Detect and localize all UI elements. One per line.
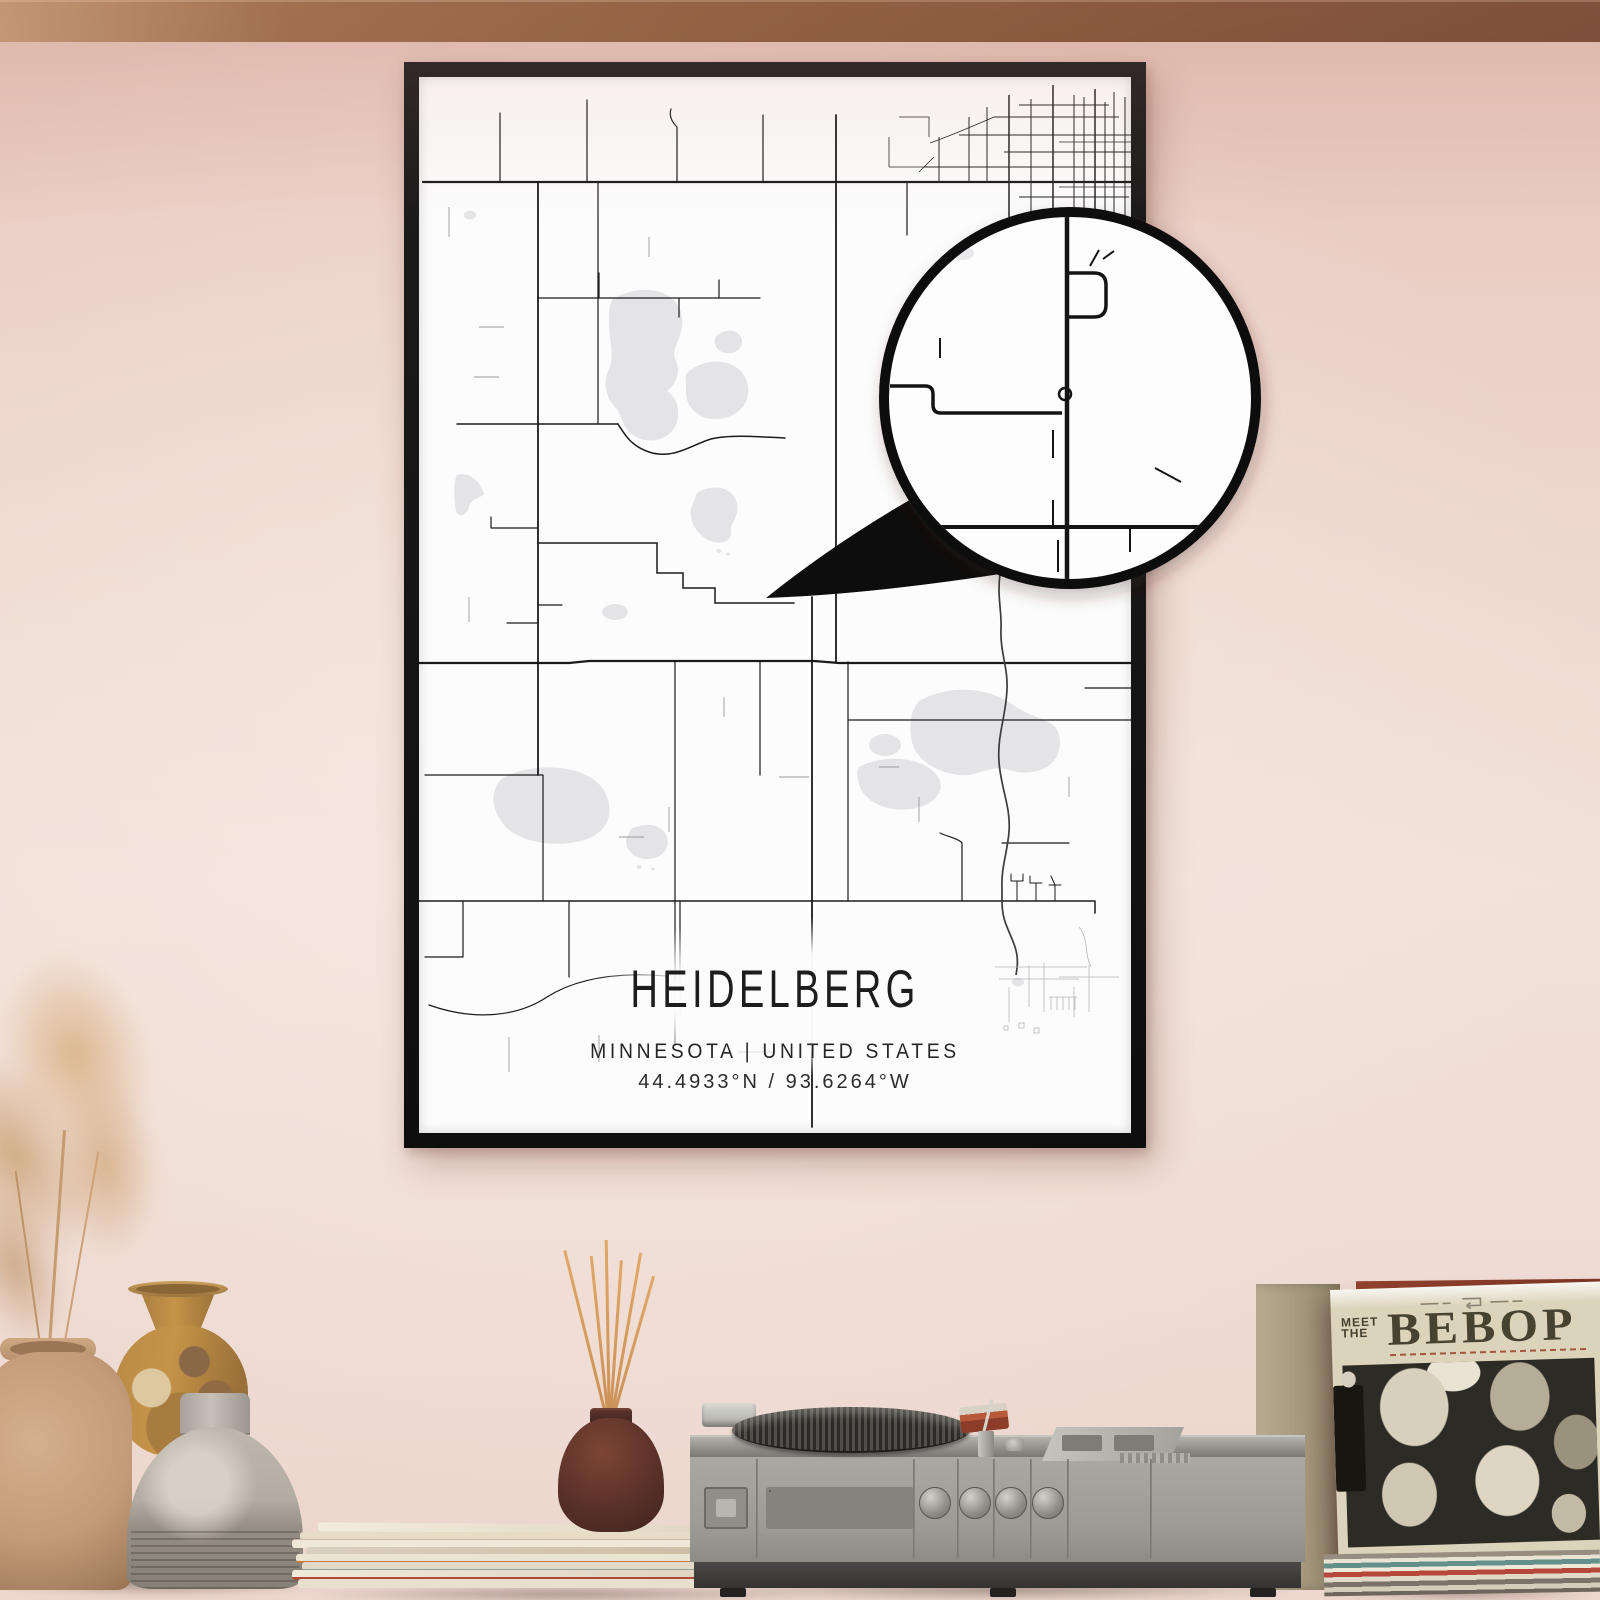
vase-amber-rim — [128, 1281, 228, 1297]
incense-diffuser — [552, 1240, 672, 1540]
vase-tan — [0, 1338, 132, 1590]
player-button — [769, 1490, 771, 1492]
power-button — [704, 1487, 748, 1529]
player-foot — [1250, 1588, 1276, 1597]
sleeve-figure — [1333, 1385, 1366, 1492]
balance-knob — [995, 1487, 1027, 1519]
vase-gray-bell — [127, 1393, 303, 1589]
incense-bottle — [558, 1418, 664, 1532]
panel-seam — [1030, 1459, 1032, 1559]
vase-gray-ribs — [131, 1527, 299, 1589]
panel-seam — [957, 1459, 959, 1559]
table-surface — [0, 0, 1600, 42]
record-sleeve: MEET THE BEBOP — [1330, 1281, 1600, 1561]
speed-selector — [1006, 1439, 1024, 1451]
sleeve-title: BEBOP — [1386, 1297, 1577, 1356]
panel-seam — [993, 1459, 995, 1559]
record-player — [690, 1405, 1305, 1595]
panel-seam — [913, 1459, 915, 1559]
volume-knob — [919, 1487, 951, 1519]
turntable-platter — [732, 1407, 970, 1453]
player-foot — [720, 1588, 746, 1597]
vase-tan-body — [0, 1352, 132, 1590]
room-scene: HEIDELBERG MINNESOTA | UNITED STATES 44.… — [0, 0, 1600, 1600]
tuning-knob — [1032, 1487, 1064, 1519]
player-plinth — [694, 1562, 1301, 1588]
cassette-slot — [1062, 1435, 1102, 1451]
panel-seam — [756, 1459, 758, 1559]
sleeve-artwork — [1342, 1358, 1600, 1548]
player-foot — [990, 1588, 1016, 1597]
poster-subtitle: MINNESOTA | UNITED STATES — [447, 1040, 1102, 1064]
panel-seam — [1150, 1459, 1152, 1559]
tone-knob — [959, 1487, 991, 1519]
panel-seam — [1067, 1459, 1069, 1559]
sleeve-pretitle-line2: THE — [1341, 1328, 1368, 1340]
vase-gray-body — [127, 1427, 303, 1589]
incense-stick — [563, 1250, 611, 1430]
preset-button-row — [766, 1487, 914, 1529]
cassette-slot — [1114, 1435, 1154, 1451]
tonearm-base — [978, 1431, 994, 1457]
poster-title: HEIDELBERG — [519, 963, 1032, 1016]
records-stack — [1324, 1550, 1600, 1597]
sleeve-pretitle: MEET THE — [1341, 1316, 1385, 1328]
magnifier-callout — [748, 186, 1284, 612]
vent-slats — [1120, 1453, 1190, 1463]
poster-coordinates: 44.4933°N / 93.6264°W — [419, 1071, 1131, 1094]
